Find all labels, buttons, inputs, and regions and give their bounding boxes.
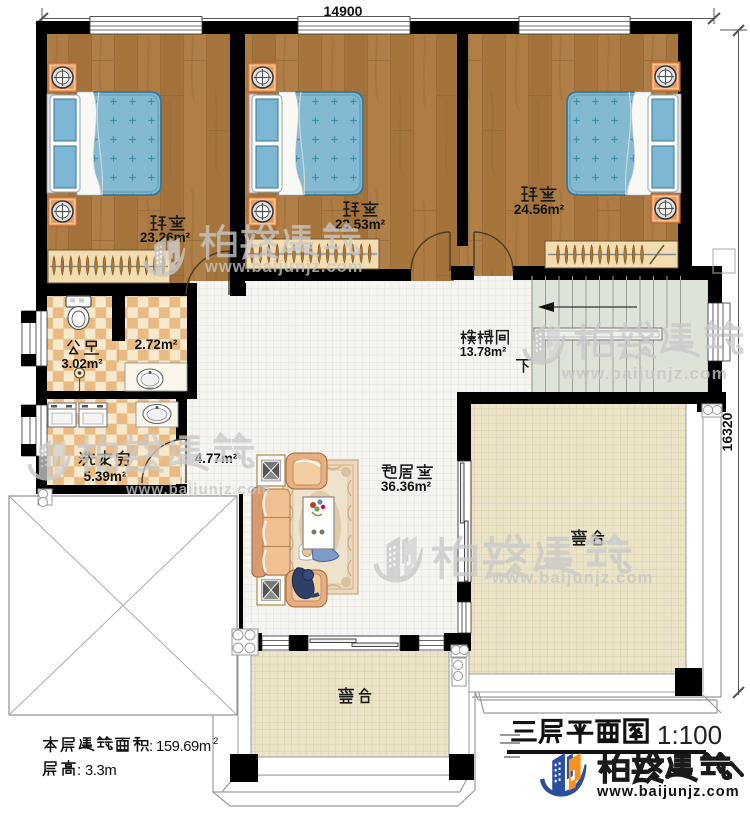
- svg-text:1:100: 1:100: [657, 720, 722, 750]
- svg-text:www.baijunjz.com: www.baijunjz.com: [561, 364, 728, 383]
- svg-text:2: 2: [213, 736, 218, 747]
- svg-text:www.baijunjz.com: www.baijunjz.com: [204, 258, 363, 276]
- svg-text::: :: [149, 738, 153, 755]
- svg-text:36.36m²: 36.36m²: [381, 479, 432, 494]
- svg-text:159.69m: 159.69m: [156, 739, 211, 755]
- svg-text:3.02m²: 3.02m²: [61, 356, 103, 371]
- svg-text:13.78m²: 13.78m²: [460, 345, 507, 359]
- svg-text:2.72m²: 2.72m²: [135, 337, 178, 352]
- svg-text:www.baijunjz.com: www.baijunjz.com: [596, 784, 740, 800]
- svg-text:24.56m²: 24.56m²: [514, 202, 565, 217]
- svg-text::: :: [77, 762, 81, 779]
- svg-text:www.baijunjz.com: www.baijunjz.com: [491, 569, 654, 587]
- svg-text:3.3m: 3.3m: [85, 763, 116, 779]
- svg-text:5.39m²: 5.39m²: [84, 469, 127, 484]
- svg-text:www.baijunjz.com: www.baijunjz.com: [125, 481, 271, 498]
